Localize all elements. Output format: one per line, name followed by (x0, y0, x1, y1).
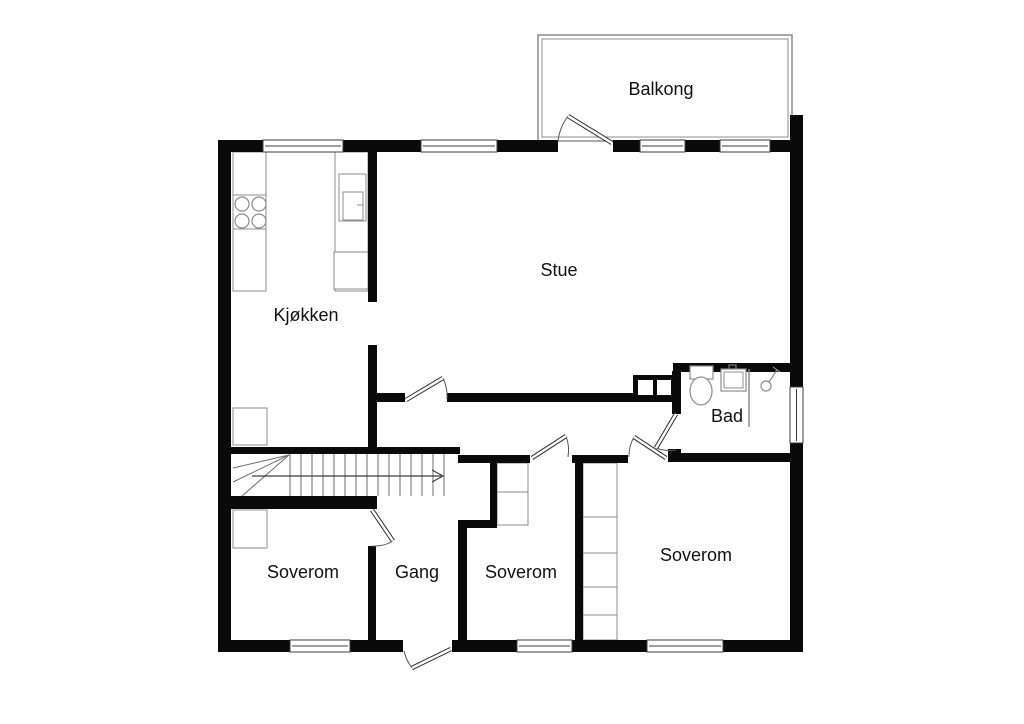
room-label-bad: Bad (711, 406, 743, 426)
chimney-flue (657, 380, 671, 395)
wall-segment (368, 546, 376, 640)
furniture-rect (233, 510, 267, 548)
shower-head-icon (761, 381, 771, 391)
bad-door-leaf-gap (656, 414, 676, 448)
furniture-rect (233, 195, 266, 229)
wall-segment (458, 455, 530, 463)
wall-segment (218, 140, 231, 652)
room-label-kjokken: Kjøkken (273, 305, 338, 325)
wall-segment (672, 371, 681, 414)
soverom2-door-leaf-gap (532, 436, 566, 458)
entrance-door-arc (404, 651, 412, 668)
room-label-gang: Gang (395, 562, 439, 582)
floor-plan-page: BalkongStueKjøkkenBadSoveromGangSoveromS… (0, 0, 1024, 724)
stue-door-arc (443, 378, 447, 399)
wall-segment (672, 453, 790, 462)
furniture-rect (343, 192, 363, 220)
chimney-flue (638, 380, 653, 395)
room-label-soverom-2: Soverom (485, 562, 557, 582)
wall-segment (375, 393, 405, 402)
entrance-door-leaf-gap (412, 649, 451, 668)
wall-segment (447, 393, 633, 402)
wall-segment (231, 447, 460, 454)
wall-segment (368, 152, 377, 302)
wall-segment (458, 520, 497, 528)
wall-segment (490, 463, 497, 520)
room-label-balkong: Balkong (628, 79, 693, 99)
furniture-rect (334, 252, 368, 289)
staircase (233, 454, 444, 496)
furniture-rect (233, 408, 267, 445)
room-label-soverom-3: Soverom (660, 545, 732, 565)
doors (372, 116, 676, 668)
wall-segment (458, 528, 467, 640)
room-label-soverom-1: Soverom (267, 562, 339, 582)
wall-segment (790, 115, 803, 652)
room-label-stue: Stue (540, 260, 577, 280)
soverom2-door-arc (566, 436, 569, 457)
wall-segment (231, 496, 377, 509)
soverom1-door-arc (372, 541, 393, 546)
balcony-door-leaf-gap (568, 116, 612, 143)
wall-segment (452, 640, 803, 652)
furniture-rect (583, 463, 617, 640)
stair-winder (233, 455, 289, 482)
soverom1-door-leaf-gap (372, 510, 393, 541)
stair-winder (233, 455, 289, 468)
toilet-bowl-icon (690, 377, 712, 405)
stue-door-leaf-gap (406, 378, 443, 400)
furniture-rect (497, 463, 528, 525)
chimney (633, 375, 675, 402)
wall-segment (575, 455, 583, 640)
wall-segment (572, 455, 628, 463)
floor-plan-drawing: BalkongStueKjøkkenBadSoveromGangSoveromS… (0, 0, 1024, 724)
soverom3-door-arc (629, 437, 634, 457)
